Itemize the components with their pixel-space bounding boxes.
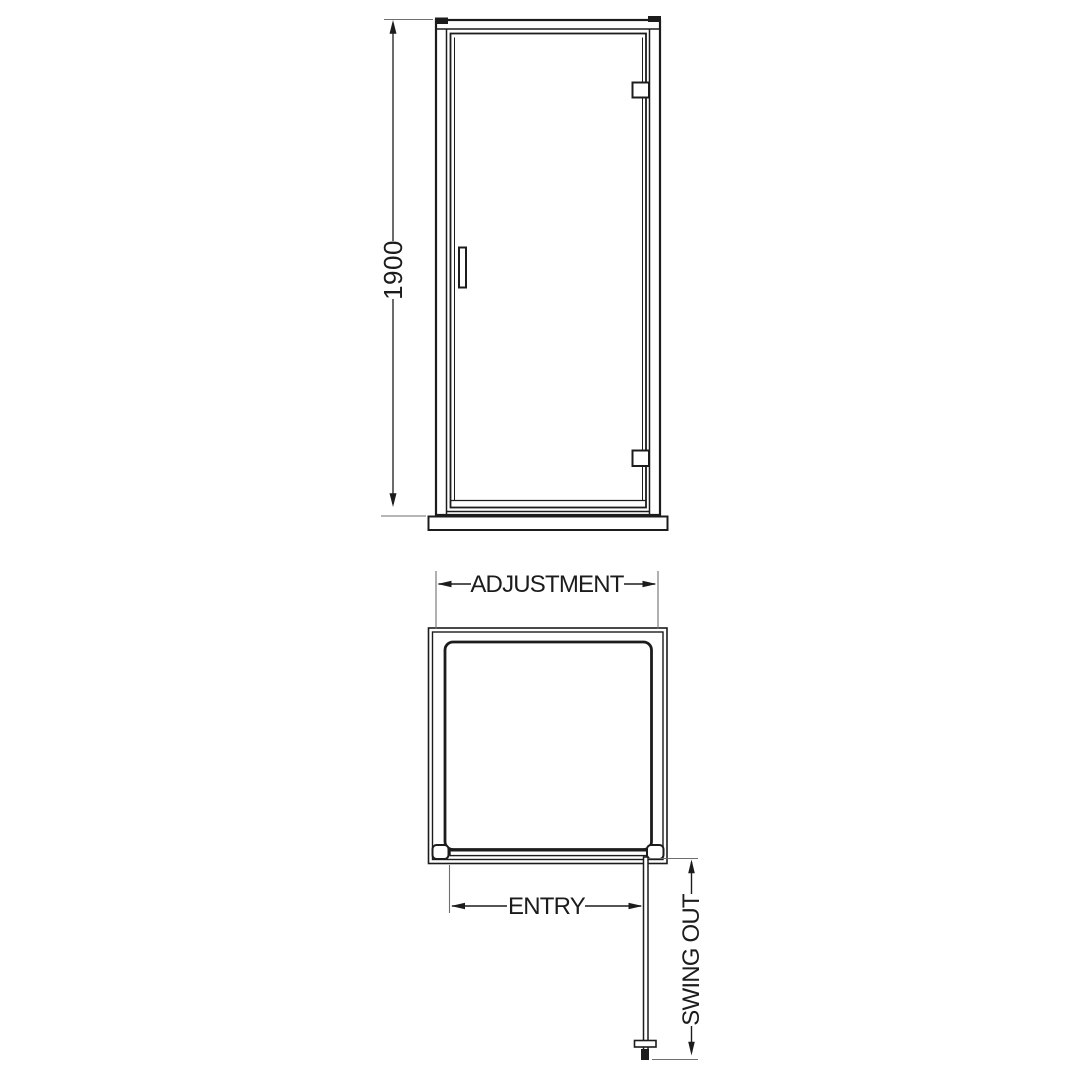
door-edge-cap	[641, 1049, 649, 1060]
entry-dimension: ENTRY	[450, 865, 643, 920]
bottom-hinge	[633, 451, 650, 467]
shower-tray-front	[429, 517, 668, 531]
shower-tray-plan	[445, 642, 652, 850]
top-hinge	[633, 83, 650, 98]
entry-dimension-label: ENTRY	[508, 893, 586, 920]
frame-cap-left	[435, 18, 448, 25]
door-open-plan	[635, 857, 657, 1060]
adjustment-dimension: ADJUSTMENT	[436, 571, 658, 629]
enclosure-inner-profile	[433, 632, 664, 860]
door-panel	[451, 34, 647, 508]
door-handle-plan	[635, 1041, 657, 1048]
enclosure-outer-profile	[429, 628, 668, 864]
arrow-down-icon	[390, 493, 397, 507]
frame-outline	[436, 20, 660, 515]
swing-out-dimension: SWING OUT	[649, 859, 706, 1060]
front-elevation-view	[429, 16, 668, 530]
arrow-right-icon	[629, 903, 643, 910]
arrow-up-icon	[390, 20, 397, 34]
wall-profile-left	[433, 845, 449, 859]
frame-cap-right	[648, 16, 661, 22]
plan-view	[429, 628, 668, 864]
arrow-right-icon	[643, 581, 657, 588]
swing-out-dimension-label: SWING OUT	[678, 893, 705, 1026]
door-swing-leaf	[644, 857, 649, 1053]
arrow-down-icon	[688, 1042, 695, 1056]
door-handle	[459, 248, 466, 288]
arrow-left-icon	[438, 581, 452, 588]
adjustment-dimension-label: ADJUSTMENT	[470, 571, 624, 598]
door-closed-plan	[450, 851, 648, 856]
wall-profile-right	[647, 845, 664, 859]
shower-door-technical-diagram: 1900 ADJUSTMENT ENTRY	[0, 0, 1080, 1080]
arrow-left-icon	[451, 903, 465, 910]
height-dimension: 1900	[378, 20, 433, 517]
height-dimension-label: 1900	[378, 240, 408, 300]
arrow-up-icon	[688, 860, 695, 874]
